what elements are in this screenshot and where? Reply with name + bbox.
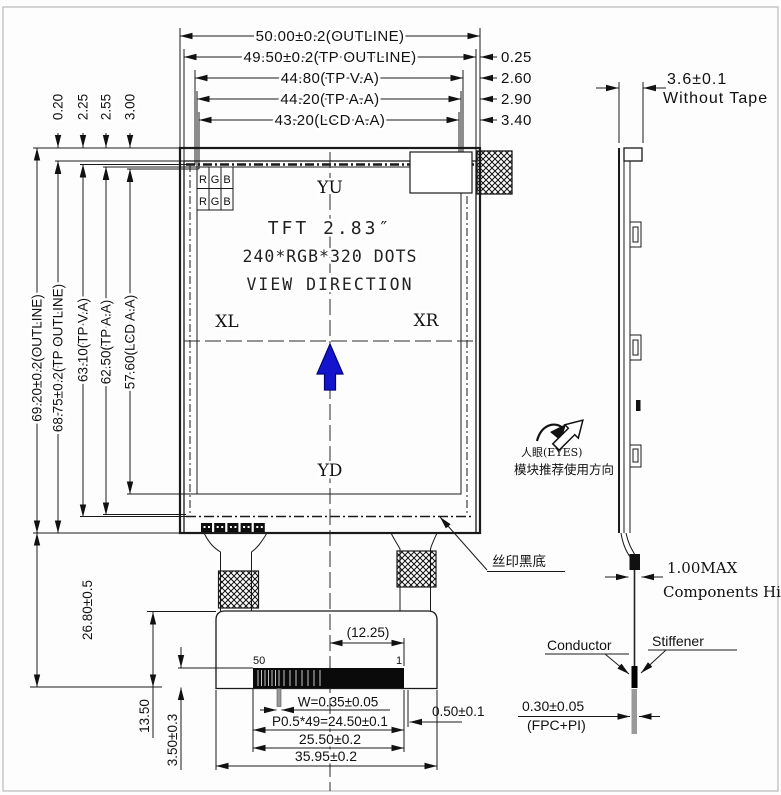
- direction-note-label: 模块推荐使用方向: [514, 462, 614, 477]
- offset-right-1: 0.25: [501, 49, 532, 66]
- screen-resolution-label: 240*RGB*320 DOTS: [243, 247, 418, 266]
- offset-top-3: 2.55: [99, 94, 114, 120]
- front-top-dimensions: 50.00±0.2(OUTLINE) 49.50±0.2(TP OUTLINE)…: [180, 28, 532, 129]
- lcd-module-engineering-drawing: 50.00±0.2(OUTLINE) 49.50±0.2(TP OUTLINE)…: [0, 0, 781, 795]
- dim-fpc-length: 26.80±0.5: [80, 580, 95, 640]
- dim-fpc-thickness: 0.30±0.05: [522, 698, 584, 714]
- rgb-g1: G: [211, 174, 220, 186]
- offset-top-1: 0.20: [51, 94, 66, 120]
- rgb-pixel-table: R G B R G B: [197, 167, 233, 210]
- marker-yu: YU: [316, 178, 343, 198]
- drawing-canvas: 50.00±0.2(OUTLINE) 49.50±0.2(TP OUTLINE)…: [0, 0, 781, 795]
- top-right-hatch-block: [477, 151, 512, 194]
- side-component-block: [630, 554, 641, 570]
- side-black-tick: [636, 400, 641, 411]
- offset-right-3: 2.90: [501, 91, 532, 108]
- marker-xr: XR: [414, 311, 440, 331]
- dim-tp-aa-height: 62.50(TP A.A): [99, 300, 114, 385]
- rgb-b2: B: [223, 196, 230, 208]
- dim-outline-height: 69.20±0.2(OUTLINE): [30, 294, 45, 421]
- conductor-label: Conductor: [547, 637, 612, 653]
- front-left-dimensions: 0.20 2.25 2.55 3.00 69.20±0.2(OUTLINE) 6…: [30, 94, 138, 533]
- rgb-g2: G: [211, 196, 220, 208]
- screen-markings: YU YD XL XR TFT 2.83″ 240*RGB*320 DOTS V…: [215, 178, 439, 481]
- silk-print-label: 丝印黑底: [492, 554, 546, 570]
- offset-top-4: 3.00: [123, 94, 138, 120]
- conductor-section: [632, 666, 638, 688]
- dim-component-height: 1.00MAX: [667, 559, 738, 577]
- top-right-window: [410, 152, 472, 193]
- dim-connector-width: 25.50±0.2: [299, 731, 361, 747]
- dim-tp-va-height: 63.10(TP V.A): [76, 298, 91, 382]
- pin-50-label: 50: [253, 655, 265, 667]
- offset-top-2: 2.25: [76, 94, 91, 120]
- dim-lcd-aa-height: 57.60(LCD A.A): [123, 295, 138, 390]
- dim-pin-width: W=0.35±0.05: [298, 695, 379, 710]
- stiffener-label: Stiffener: [652, 633, 704, 649]
- rgb-r2: R: [199, 196, 207, 208]
- bottom-edge-components: [201, 523, 265, 532]
- side-view: 3.6±0.1 Without Tape 1.00MAX Components …: [514, 71, 781, 734]
- extended-pin: [277, 689, 281, 707]
- marker-yd: YD: [317, 461, 343, 481]
- dim-tp-outline-width: 49.50±0.2(TP OUTLINE): [243, 49, 416, 66]
- component-height-note: Components Hight: [663, 583, 781, 601]
- pin-1-label: 1: [396, 655, 402, 667]
- dim-lcd-aa-width: 43.20(LCD A.A): [275, 112, 386, 129]
- right-leg-hatch-block: [397, 551, 436, 587]
- dim-tp-aa-width: 44.20(TP A.A): [280, 91, 379, 108]
- dim-pitch-ref: (12.25): [347, 625, 390, 640]
- eyes-label: 人眼(EYES): [521, 446, 582, 459]
- dim-tail: 13.50: [137, 699, 152, 733]
- dim-outline-width: 50.00±0.2(OUTLINE): [256, 28, 405, 45]
- dim-tp-outline-height: 68.75±0.2(TP OUTLINE): [51, 284, 66, 432]
- fpc-tail: 50 1: [204, 533, 437, 707]
- left-leg-hatch-block: [219, 571, 259, 608]
- dim-pitch-total: P0.5*49=24.50±0.1: [272, 714, 388, 729]
- screen-view-direction-label: VIEW DIRECTION: [246, 275, 413, 294]
- fpc-thickness-note: (FPC+PI): [527, 717, 586, 733]
- rgb-b1: B: [223, 174, 230, 186]
- rgb-r1: R: [199, 174, 207, 186]
- offset-right-4: 3.40: [501, 112, 532, 129]
- dim-margin: 0.50±0.1: [432, 704, 484, 719]
- dim-connector-height: 3.50±0.3: [165, 714, 180, 766]
- view-direction-arrow-icon: [317, 344, 343, 390]
- offset-right-2: 2.60: [501, 70, 532, 87]
- stiffener-section: [632, 689, 638, 734]
- dim-thickness: 3.6±0.1: [667, 71, 727, 88]
- silk-print-callout: 丝印黑底: [440, 517, 565, 572]
- marker-xl: XL: [215, 312, 238, 332]
- dim-fpc-width: 35.95±0.2: [295, 748, 357, 764]
- dim-tp-va-width: 44.80(TP V.A): [281, 70, 380, 87]
- screen-size-label: TFT 2.83″: [268, 218, 393, 239]
- thickness-note: Without Tape: [663, 90, 768, 107]
